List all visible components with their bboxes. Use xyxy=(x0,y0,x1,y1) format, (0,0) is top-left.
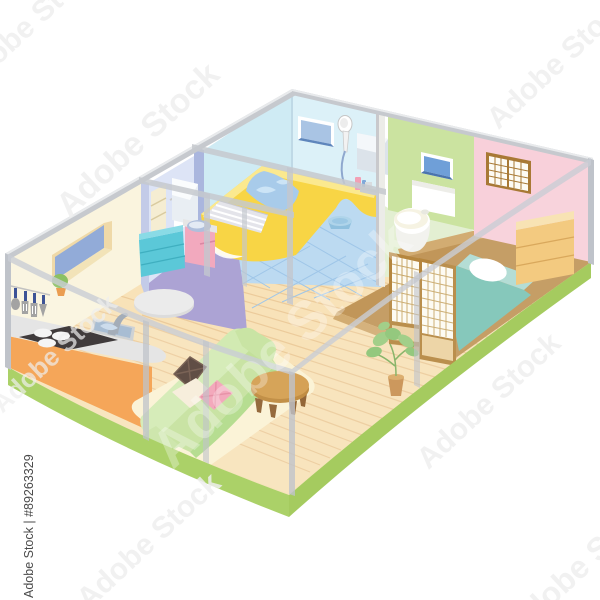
svg-text:Adobe Stock | #89263329: Adobe Stock | #89263329 xyxy=(22,454,36,598)
